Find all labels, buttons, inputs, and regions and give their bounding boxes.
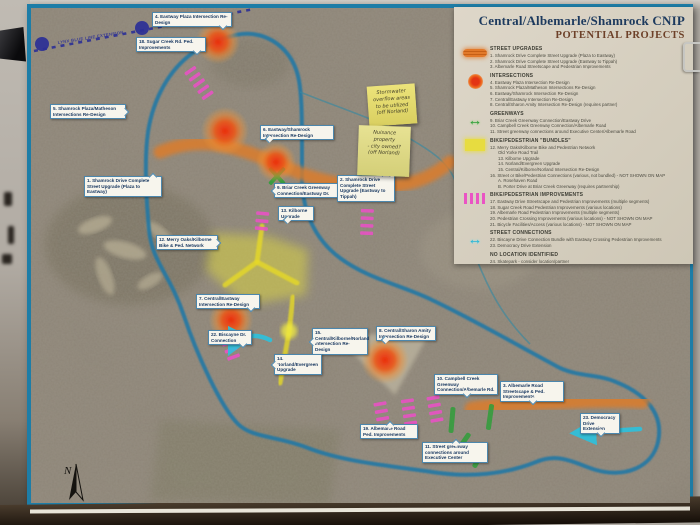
map-callout-label: 12. Merry Oaks/Kilborne Bike & Ped. Netw… <box>156 235 218 250</box>
legend-section-body: INTERSECTIONS4. Eastway Plaza Intersecti… <box>490 73 685 108</box>
legend-section-body: STREET UPGRADES1. Shamrock Drive Complet… <box>490 46 685 70</box>
street-connection-arrow-icon <box>468 231 483 249</box>
legend-section: BIKE/PEDESTRIAN "BUNDLES"12. Merry Oaks/… <box>460 138 685 190</box>
map-callout-label: 1. Shamrock Drive Complete Street Upgrad… <box>84 176 162 197</box>
intersection-dot-icon <box>468 74 483 89</box>
map-callout-label: 9. Briar Creek Greenway Connection/Eastw… <box>274 183 342 198</box>
map-callout-label: 22. Biscayne Dr. Connection <box>208 330 252 345</box>
lynx-station-dot <box>35 37 49 51</box>
legend-section: NO LOCATION IDENTIFIED24. Skatepark - co… <box>460 252 685 264</box>
poster-title: Central/Albemarle/Shamrock CNIP <box>460 13 685 29</box>
legend-section-body: GREENWAYS9. Briar Creek Greenway Connect… <box>490 111 685 135</box>
pink-dash <box>361 209 374 213</box>
north-label: N <box>63 465 72 477</box>
map-callout-label: 6. Eastway/Shamrock Intersection Re-Desi… <box>260 125 334 140</box>
ped-dashes-icon <box>464 193 486 204</box>
legend-item: 24. Skatepark - consider location/partne… <box>490 259 685 264</box>
bundle-square-icon <box>460 138 490 190</box>
legend-item: 23. Democracy Drive Extension <box>490 243 685 249</box>
legend-item: B. Porter Drive at Briar Creek Greenway … <box>490 184 685 190</box>
greenway-arrow-icon <box>460 111 490 135</box>
greenway-arrow-icon <box>468 112 483 130</box>
legend-section: STREET UPGRADES1. Shamrock Drive Complet… <box>460 46 685 70</box>
photo-of-project-map-poster: LYNX BLUE LINE EXTENSIONN Central/Albema… <box>0 0 700 525</box>
map-callout-label: 4. Eastway Plaza Intersection Re-Design <box>152 12 232 27</box>
legend-section-heading: STREET CONNECTIONS <box>490 230 685 236</box>
legend-section: GREENWAYS9. Briar Creek Greenway Connect… <box>460 111 685 135</box>
intersection-redesign-blob <box>201 107 249 155</box>
legend-section-body: BIKE/PEDESTRIAN "BUNDLES"12. Merry Oaks/… <box>490 138 685 190</box>
sticky-note: Nuisanceproperty- city owned?(off Norlan… <box>357 125 411 177</box>
map-callout-label: 5. Shamrock Plaza/Matheson Intersections… <box>50 104 126 119</box>
map-callout-label: 19. Albemarle Road Ped. Improvements <box>360 424 418 439</box>
intersection-dot-icon <box>460 73 490 108</box>
legend-section: STREET CONNECTIONS22. Biscayne Drive Con… <box>460 230 685 249</box>
sticky-note-line: (off Norland) <box>360 149 408 157</box>
legend-section-heading: INTERSECTIONS <box>490 73 685 79</box>
poster-subtitle: POTENTIAL PROJECTS <box>460 30 685 41</box>
map-callout-label: 3. Albemarle Road Streetscape & Ped. Imp… <box>500 381 564 402</box>
map-callout-label: 14. Norland/Evergreen Upgrade <box>274 354 322 375</box>
bike-ped-network-node <box>281 323 297 339</box>
map-callout-label: 2. Shamrock Drive Complete Street Upgrad… <box>337 175 395 202</box>
map-callout-label: 10. Campbell Creek Greenway Connection/A… <box>434 374 498 395</box>
map-callout-label: 7. Central/Eastway Intersection Re-Desig… <box>196 294 260 309</box>
street-upgrade-bar-icon <box>460 46 490 70</box>
intersection-redesign-blob <box>256 142 296 182</box>
legend-item: 11. Street greenway connections around E… <box>490 129 685 135</box>
pink-dash <box>360 224 373 228</box>
legend-item: 8. Central/Sharon Amity Intersection Re-… <box>490 102 685 108</box>
lynx-station-dot <box>135 21 149 35</box>
none-icon <box>460 252 490 264</box>
street-connection-arrow-icon <box>460 230 490 249</box>
pedestrian-improvement-marks <box>255 211 270 231</box>
legend-section: INTERSECTIONS4. Eastway Plaza Intersecti… <box>460 73 685 108</box>
map-callout-label: 15. Central/Kilborne/Norland Intersectio… <box>312 328 368 355</box>
street-upgrade-bar-icon <box>463 49 487 57</box>
legend-section: BIKE/PEDESTRIAN IMPROVEMENTS17. Eastway … <box>460 192 685 227</box>
map-callout-label: 8. Central/Sharon Amity Intersection Re-… <box>376 326 436 341</box>
legend-section-heading: NO LOCATION IDENTIFIED <box>490 252 685 258</box>
map-callout-label: 18. Sugar Creek Rd. Ped. Improvements <box>136 37 206 52</box>
binder-clip-icon <box>683 42 700 72</box>
legend-section-heading: BIKE/PEDESTRIAN "BUNDLES" <box>490 138 685 144</box>
bundle-square-icon <box>465 139 485 151</box>
ped-dashes-icon <box>460 192 490 227</box>
sticky-note: Stormwateroverflow areasto be utilized(o… <box>367 83 418 126</box>
map-callout-label: 13. Kilborne Upgrade <box>278 206 314 221</box>
map-callout-label: 23. Democracy Drive Extension <box>580 413 620 434</box>
legend-sections: STREET UPGRADES1. Shamrock Drive Complet… <box>460 46 685 264</box>
pink-dash <box>360 231 373 235</box>
legend-panel: Central/Albemarle/Shamrock CNIP POTENTIA… <box>454 7 693 264</box>
legend-item: 21. Bicycle Facilities/Access (various l… <box>490 222 685 228</box>
map-callout-label: 11. Street greenway connections around E… <box>422 442 488 463</box>
legend-section-body: BIKE/PEDESTRIAN IMPROVEMENTS17. Eastway … <box>490 192 685 227</box>
pink-dash <box>361 216 374 220</box>
legend-section-body: STREET CONNECTIONS22. Biscayne Drive Con… <box>490 230 685 249</box>
legend-section-heading: BIKE/PEDESTRIAN IMPROVEMENTS <box>490 192 685 198</box>
legend-section-heading: GREENWAYS <box>490 111 685 117</box>
legend-section-heading: STREET UPGRADES <box>490 46 685 52</box>
binder-clip-icon <box>0 27 26 63</box>
legend-section-body: NO LOCATION IDENTIFIED24. Skatepark - co… <box>490 252 685 264</box>
legend-item: 3. Albemarle Road Streetscape and Pedest… <box>490 64 685 70</box>
